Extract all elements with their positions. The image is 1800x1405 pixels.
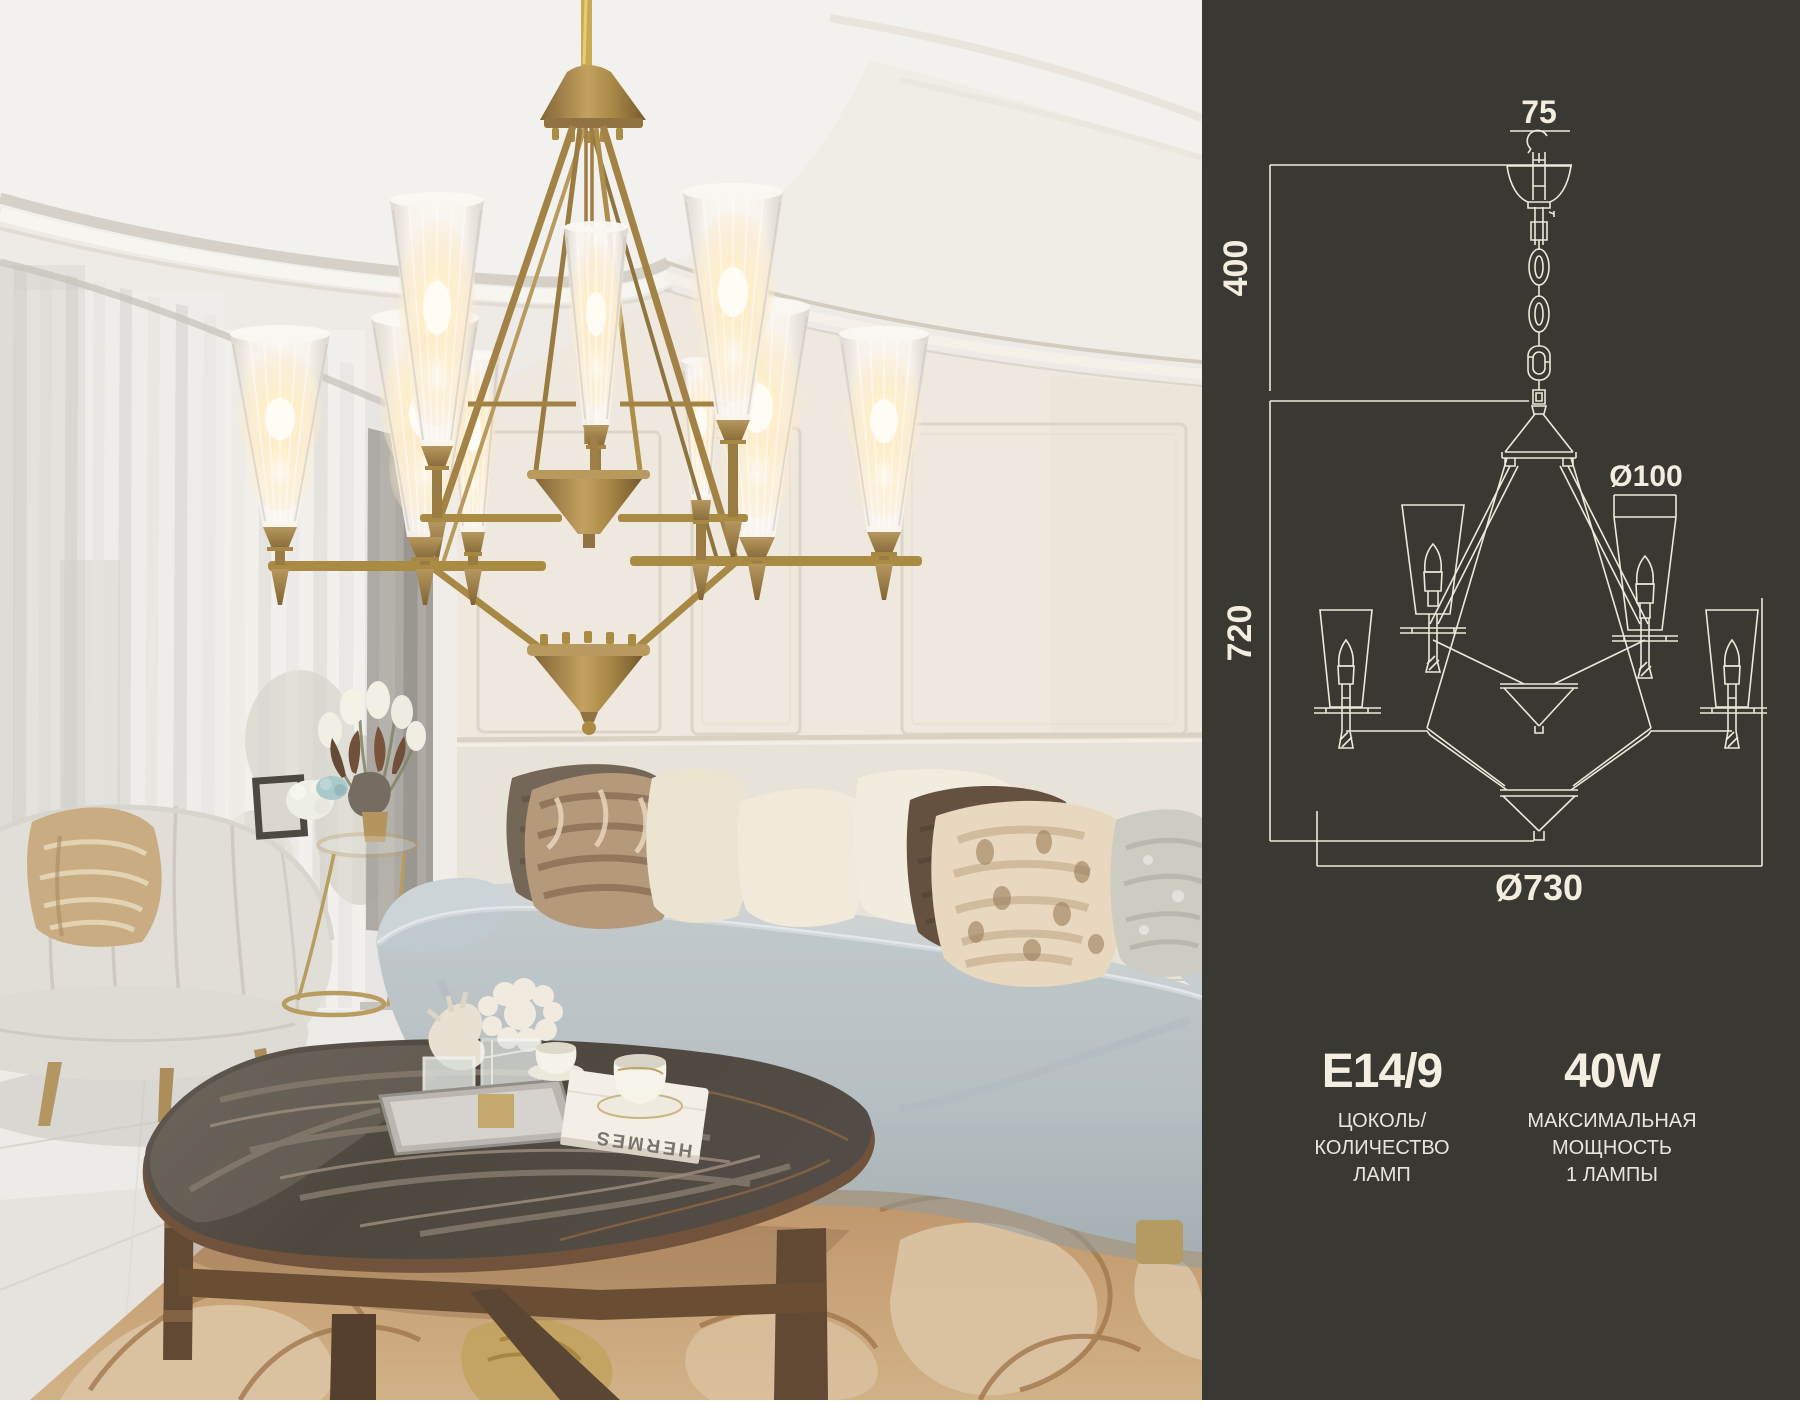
svg-text:400: 400 [1217,240,1255,297]
svg-text:Ø100: Ø100 [1609,460,1682,493]
svg-text:75: 75 [1521,94,1557,130]
svg-text:720: 720 [1221,605,1259,662]
svg-text:Ø730: Ø730 [1495,867,1583,908]
